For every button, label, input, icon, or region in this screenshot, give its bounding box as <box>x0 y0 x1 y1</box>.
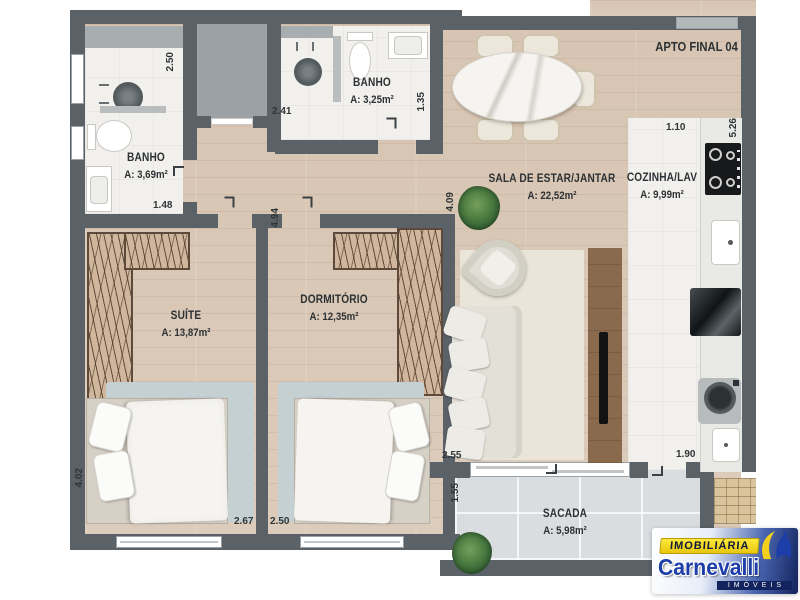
toilet-banho1-bowl <box>96 120 132 152</box>
room-area: A: 3,69m² <box>124 169 168 181</box>
room-label-banho2: BANHO A: 3,25m² <box>350 77 394 106</box>
dorm-bed-duvet <box>294 398 394 523</box>
wall-suite-top-a <box>70 214 218 228</box>
logo-tagline: IMÓVEIS <box>717 581 792 590</box>
room-label-suite: SUÍTE A: 13,87m² <box>162 310 211 339</box>
dining-table <box>452 52 582 122</box>
banho1-ledge <box>85 26 183 48</box>
wall-living-bottom-b <box>630 462 648 478</box>
brick-wall-patch <box>714 478 756 524</box>
cooktop-burner <box>709 148 722 161</box>
wall-banho2-bottom-a <box>275 140 378 154</box>
dimension: 2.50 <box>165 52 176 71</box>
dimension: 2.41 <box>272 106 291 117</box>
door-icon-dorm <box>303 197 313 208</box>
washing-machine-panel <box>733 380 739 386</box>
suite-bed-duvet <box>126 398 228 523</box>
room-label-sacada: SACADA A: 5,98m² <box>543 508 587 537</box>
room-label-dormitorio: DORMITÓRIO A: 12,35m² <box>300 294 368 323</box>
toilet-banho1-tank <box>87 124 96 150</box>
logo-banner: IMOBILIÁRIA <box>659 538 760 554</box>
shower-handle-icon <box>99 84 109 86</box>
dimension: 1.90 <box>676 449 695 460</box>
room-area: A: 13,87m² <box>162 327 211 339</box>
sliding-door-panel-1 <box>476 466 548 469</box>
floor-plan: APTO FINAL 04 BANHO A: 3,69m² BANHO A: 3… <box>0 0 800 600</box>
window-dormitorio-rail <box>304 541 400 543</box>
shower-handle-icon <box>99 102 109 104</box>
room-name: COZINHA/LAV <box>627 172 697 184</box>
shower-head-icon <box>294 58 322 86</box>
dimension: 1.10 <box>666 122 685 133</box>
logo-name: Carnevalli <box>658 554 759 581</box>
door-icon-sacada-cozinha <box>652 466 663 476</box>
cooktop-burner <box>726 178 735 187</box>
wardrobe-dorm-right <box>397 228 443 396</box>
room-area: A: 5,98m² <box>543 525 587 537</box>
door-icon-sacada <box>546 464 557 474</box>
wall-top-left <box>70 10 462 24</box>
wall-banho1-right-a <box>183 24 197 160</box>
room-name: SACADA <box>543 508 587 520</box>
sliding-door-panel-2 <box>552 470 624 473</box>
wall-suite-dorm-divider <box>256 214 268 534</box>
vanity-banho1-basin <box>90 176 108 204</box>
kitchen-sink-drain <box>728 240 733 245</box>
shower-handle-icon <box>312 42 314 51</box>
laundry-tank-drain <box>724 443 728 447</box>
door-icon-banho2 <box>387 118 397 129</box>
window-top-right <box>676 17 738 29</box>
dimension: 4.02 <box>74 468 85 487</box>
tv-icon <box>599 332 608 424</box>
fridge-icon <box>690 288 741 336</box>
dimension: 5.26 <box>728 118 739 137</box>
dimension: 4.09 <box>445 192 456 211</box>
wall-dorm-top <box>320 214 455 228</box>
wall-shaft-right <box>267 24 281 152</box>
sink-banho2-basin <box>394 36 422 55</box>
room-name: SALA DE ESTAR/JANTAR <box>488 173 615 185</box>
room-name: BANHO <box>124 152 168 164</box>
logo-house-icon <box>756 530 794 562</box>
cooktop-knobs <box>737 150 740 188</box>
window-left-1 <box>71 54 84 104</box>
cooktop-burner <box>726 151 735 160</box>
service-shaft <box>197 24 267 118</box>
entry-door-leaf <box>211 118 253 125</box>
room-area: A: 22,52m² <box>488 190 615 202</box>
dimension: 1.55 <box>450 483 461 502</box>
toilet-banho2-bowl <box>349 42 371 80</box>
room-name: BANHO <box>350 77 394 89</box>
shower-bench <box>100 106 166 113</box>
wall-shaft-bottom-b <box>253 116 267 128</box>
room-label-cozinha: COZINHA/LAV A: 9,99m² <box>627 172 697 201</box>
dimension: 2.50 <box>270 516 289 527</box>
wall-right <box>741 16 756 472</box>
window-left-2 <box>71 126 84 160</box>
agency-logo: IMOBILIÁRIA Carnevalli IMÓVEIS <box>652 528 798 594</box>
room-label-sala: SALA DE ESTAR/JANTAR A: 22,52m² <box>488 173 615 202</box>
room-label-banho1: BANHO A: 3,69m² <box>124 152 168 181</box>
dimension: 2.67 <box>234 516 253 527</box>
apartment-label: APTO FINAL 04 <box>655 40 738 54</box>
cooktop-burner <box>709 176 722 189</box>
toilet-banho2-tank <box>347 32 373 41</box>
wall-shaft-bottom-a <box>195 116 211 128</box>
door-icon-suite <box>225 197 235 208</box>
dimension: 1.48 <box>153 200 172 211</box>
room-name: SUÍTE <box>162 310 211 322</box>
shower-divider <box>333 36 341 102</box>
door-icon-banho1 <box>173 166 184 176</box>
room-area: A: 3,25m² <box>350 94 394 106</box>
room-area: A: 9,99m² <box>627 189 697 201</box>
kitchen-sink <box>711 220 740 265</box>
window-suite-rail <box>120 541 218 543</box>
banho2-niche <box>277 26 333 38</box>
dining-chair <box>522 118 560 142</box>
dimension: 4.94 <box>270 208 281 227</box>
shower-handle-icon <box>296 42 298 51</box>
dimension: 2.55 <box>442 450 461 461</box>
wall-living-bottom-a <box>430 462 470 478</box>
room-name: DORMITÓRIO <box>300 294 368 306</box>
wall-sala-left-top <box>430 24 443 154</box>
dimension: 1.35 <box>416 92 427 111</box>
wardrobe-suite-top <box>124 232 190 270</box>
room-area: A: 12,35m² <box>300 311 368 323</box>
washing-machine-door <box>704 382 736 414</box>
